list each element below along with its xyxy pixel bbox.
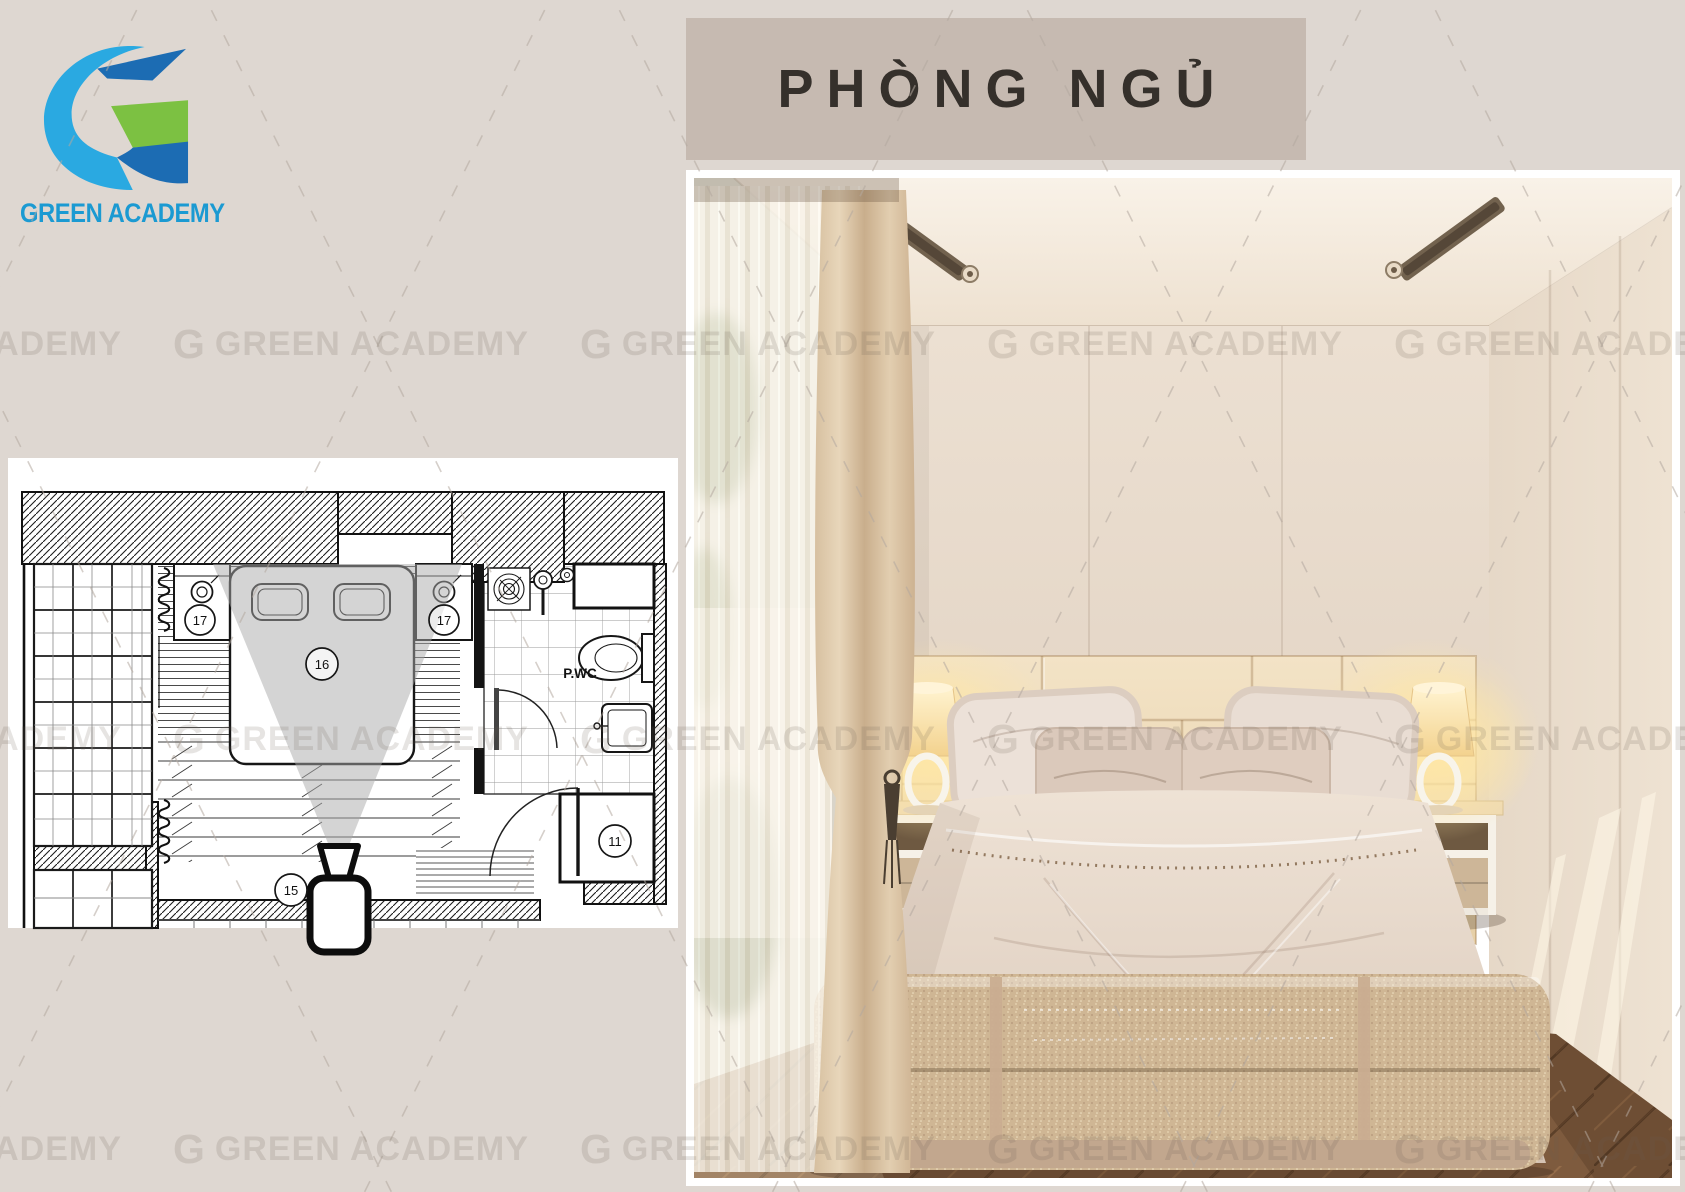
plan-sink: [594, 704, 652, 752]
plan-niche: [574, 564, 654, 608]
floor-plan-drawing: P.WC 16 17 17 15 11: [8, 458, 678, 958]
spotlight-right: [1386, 262, 1402, 278]
callout-door: 11: [608, 834, 622, 849]
bedroom-render-photo: [686, 170, 1680, 1186]
curtains: [694, 178, 915, 1173]
plan-wc-door-leaf: [494, 688, 499, 750]
watermark-text: GREEN ACADEMY: [215, 1130, 529, 1168]
title-banner: PHÒNG NGỦ: [686, 18, 1306, 160]
watermark-logo-glyph: G: [580, 321, 613, 367]
callout-nightstand-left: 17: [193, 613, 207, 628]
green-academy-watermark: GGREEN ACADEMY: [173, 321, 529, 368]
green-academy-logo-icon: [42, 44, 190, 192]
logo-block: GREEN ACADEMY: [0, 0, 260, 250]
callout-camera: 15: [284, 883, 298, 898]
plan-cabinet: [416, 848, 534, 898]
green-academy-watermark: GGREEN ACADEMY: [0, 321, 122, 368]
plan-room-label-wc: P.WC: [563, 666, 597, 681]
watermark-text: GREEN ACADEMY: [215, 325, 529, 363]
bench-trim: [1358, 977, 1370, 1167]
logo-wordmark: GREEN ACADEMY: [20, 198, 225, 229]
presentation-slide: { "page": { "background": "#ded7d1" }, "…: [0, 0, 1685, 1192]
watermark-text: GREEN ACADEMY: [0, 325, 122, 363]
plan-window-wall: [24, 564, 152, 928]
callout-bed: 16: [315, 657, 329, 672]
watermark-logo-glyph: G: [173, 1126, 206, 1172]
watermark-logo-glyph: G: [173, 321, 206, 367]
bench-trim: [990, 977, 1002, 1167]
drape-curtain: [814, 190, 915, 1173]
watermark-logo-glyph: G: [580, 1126, 613, 1172]
spotlight-left: [962, 266, 978, 282]
watermark-text: GREEN ACADEMY: [0, 1130, 122, 1168]
callout-nightstand-right: 17: [437, 613, 451, 628]
plan-shower-drain: [488, 568, 530, 610]
page-title: PHÒNG NGỦ: [764, 58, 1227, 120]
foot-bench: [810, 974, 1554, 1178]
green-academy-watermark: GGREEN ACADEMY: [173, 1126, 529, 1173]
green-academy-watermark: GGREEN ACADEMY: [0, 1126, 122, 1173]
